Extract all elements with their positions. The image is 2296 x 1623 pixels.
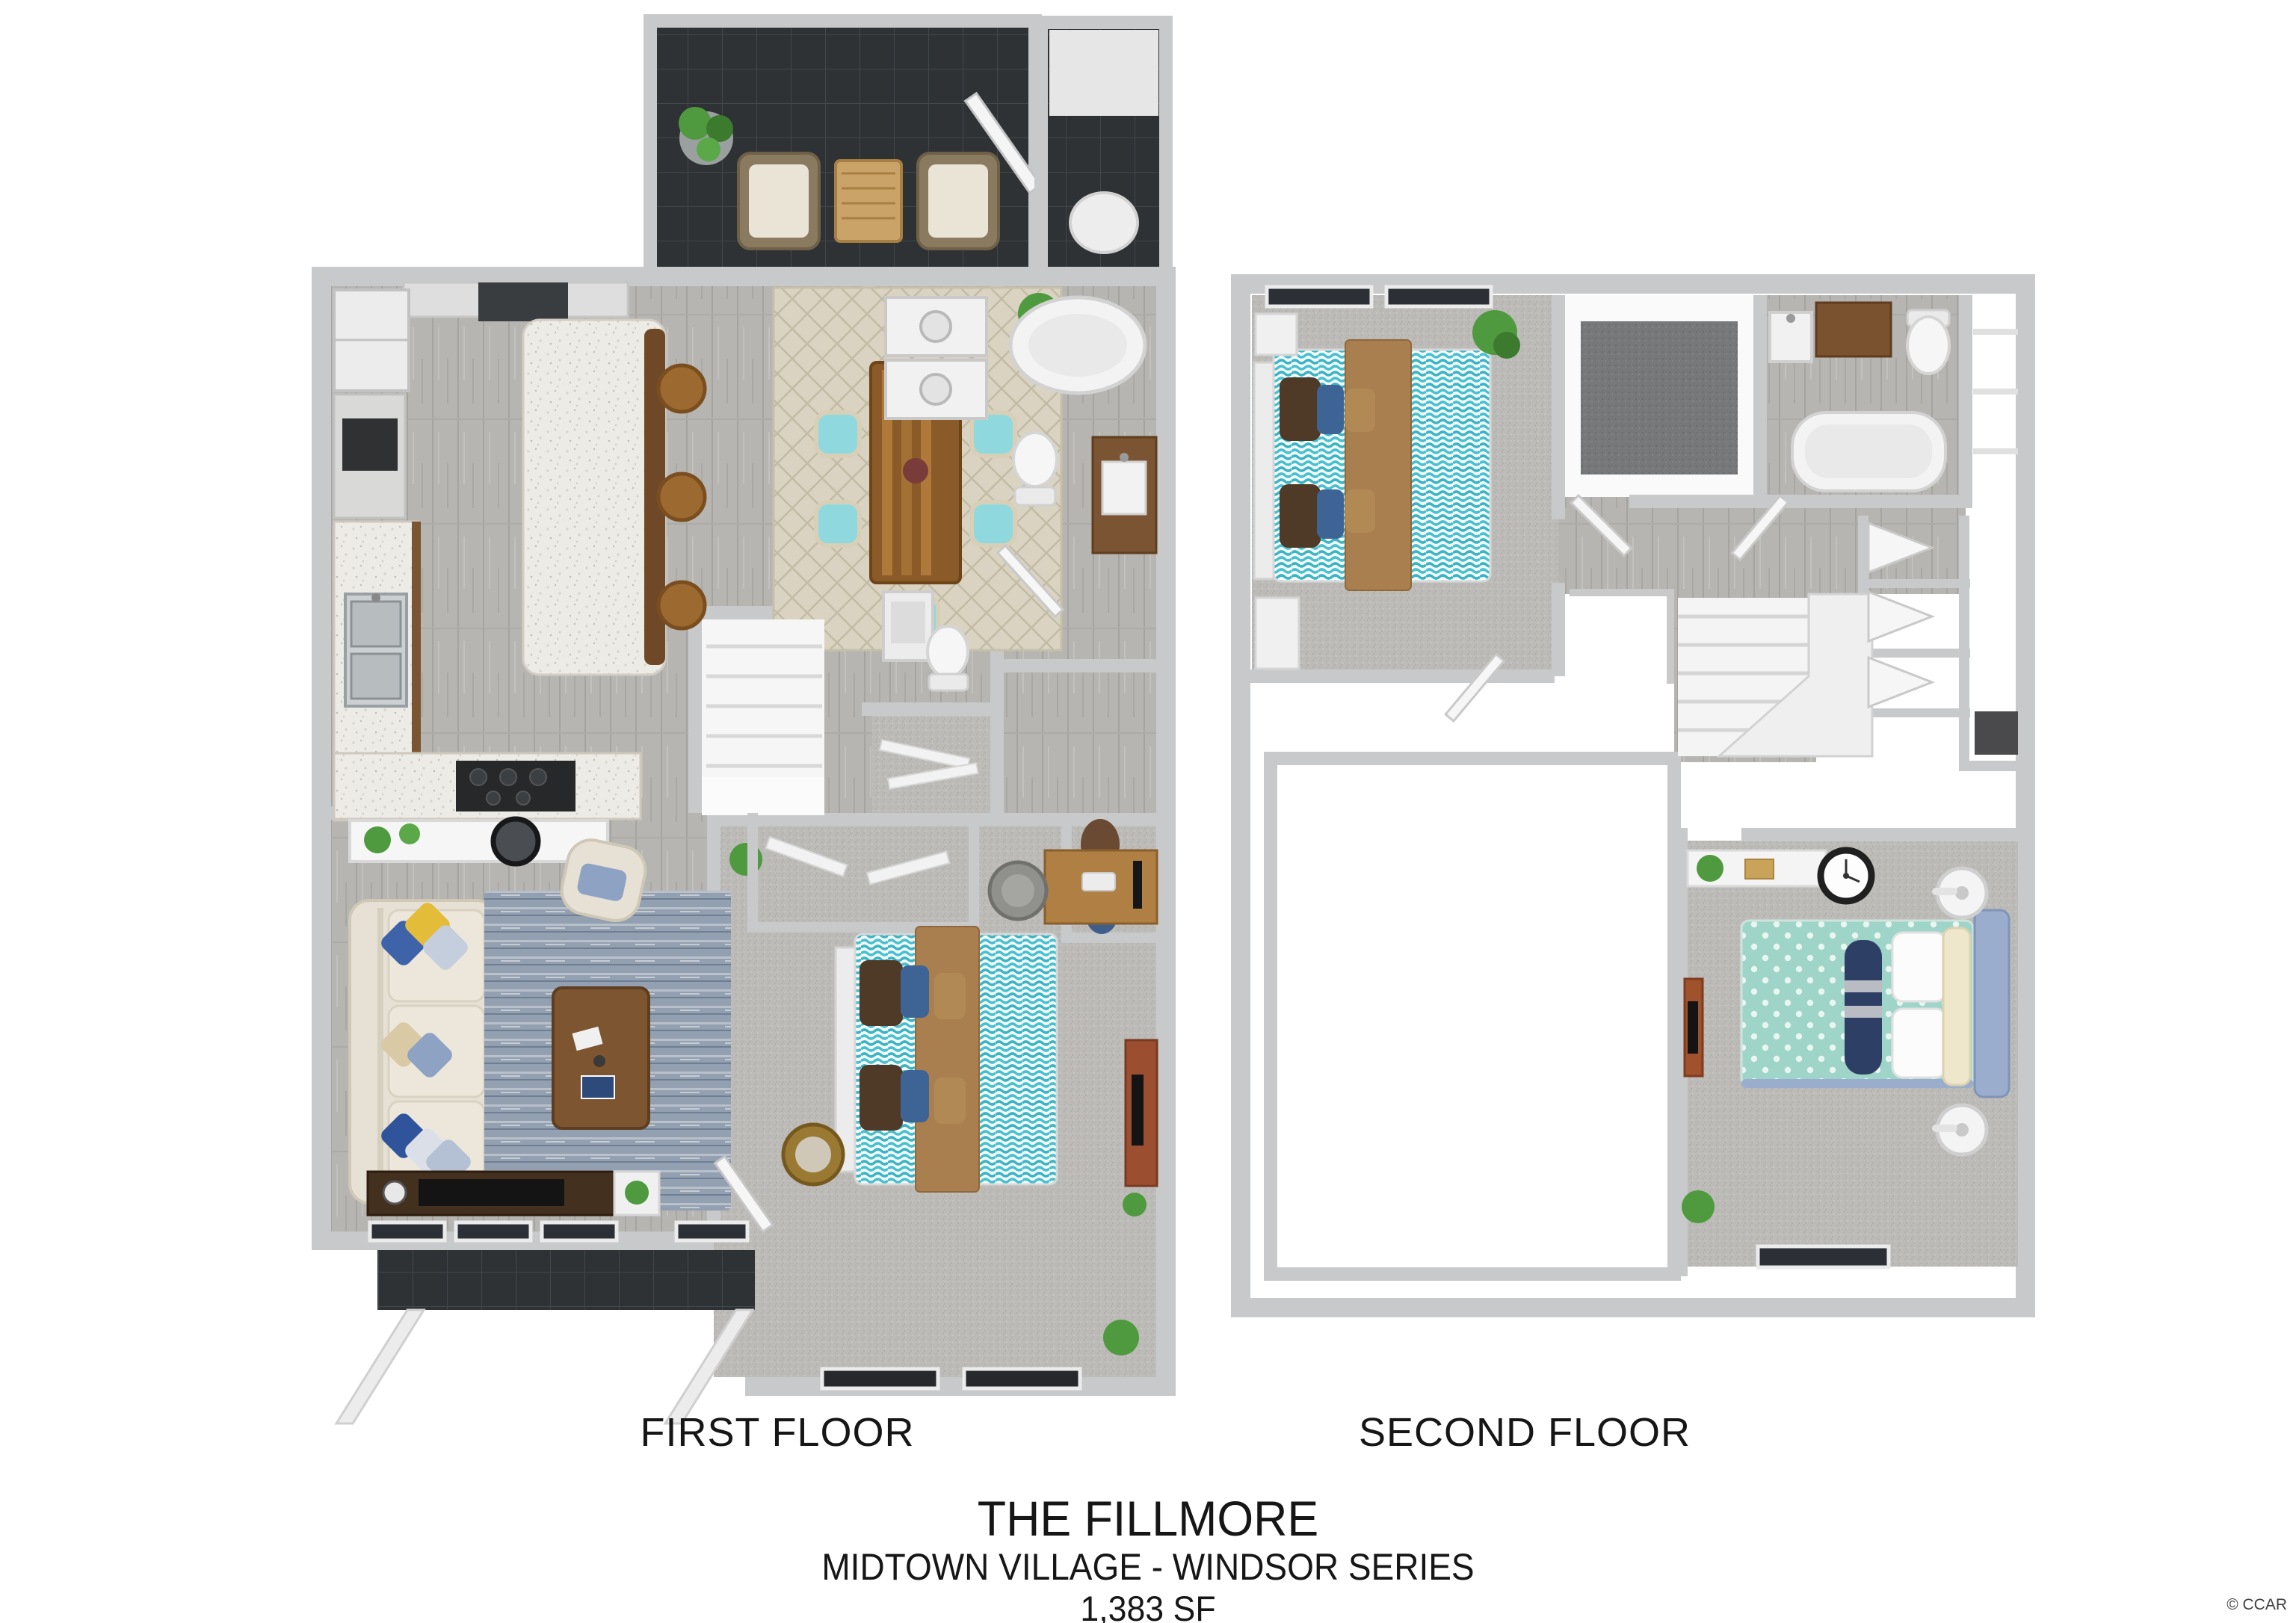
closet-niche [1975,711,2018,755]
patio [650,21,1040,280]
cooktop [456,761,575,811]
bedroom2-dresser [1685,979,1703,1076]
front-porch [336,1250,755,1423]
patio-armchair-left [738,153,819,249]
porch-railing-left [336,1310,424,1423]
square-footage: 1,383 SF [58,1589,2238,1623]
desk [990,850,1157,924]
bath2-cabinet [1816,303,1891,356]
sofa [350,900,496,1203]
bath-vanity [1093,437,1156,553]
walkin-closet-carpet [1581,321,1738,474]
tv-console [368,1172,659,1215]
open-to-below [1271,758,1674,1274]
bedroom1-plant [1103,1320,1139,1355]
second-floor-plan [1241,284,2026,1308]
toilet-powder [928,626,968,677]
bar-stools [658,365,705,628]
kitchen-sink [345,593,407,706]
toilet-bath1 [1013,433,1057,505]
master-dresser [1256,598,1299,669]
first-floor-label: FIRST FLOOR [478,1409,1076,1456]
bedroom2-window [1758,1246,1889,1267]
stair-railing-side [1667,594,1674,684]
bed-first-floor [836,927,1057,1192]
bed-second-floor [1741,910,2009,1097]
sunburst-mirror [783,1125,843,1184]
second-floor-label: SECOND FLOOR [1241,1409,1809,1456]
tub-bath2 [1792,412,1945,491]
community-series: MIDTOWN VILLAGE - WINDSOR SERIES [92,1545,2204,1589]
master-nightstand [1256,314,1297,355]
console-plant [625,1181,649,1205]
title-block: THE FILLMORE MIDTOWN VILLAGE - WINDSOR S… [0,1491,2296,1623]
round-mirror [493,819,538,864]
floor-plans-canvas [0,0,2296,1623]
kitchen-island [523,320,665,675]
patio-coffee-table [836,161,901,241]
stair-railing-top [1570,589,1674,596]
toilet-bath2 [1907,310,1949,374]
tripod-clock [1821,850,1871,901]
living-windows [370,1222,747,1240]
storage-fixture [1070,193,1138,253]
plan-name: THE FILLMORE [58,1491,2238,1545]
range-hood [478,282,568,321]
bedroom2-plant [1682,1190,1715,1223]
first-floor-plan [321,21,1166,1423]
watermark: © CCAR [2226,1596,2287,1614]
floor-plan-sheet: FIRST FLOOR SECOND FLOOR THE FILLMORE MI… [0,0,2296,1623]
master-bed [1254,340,1490,590]
bedroom2-shelf [1688,850,1826,886]
storage-room [1041,22,1166,280]
console-clock [383,1181,406,1204]
coffee-table [553,988,649,1128]
patio-armchair-right [918,153,999,249]
